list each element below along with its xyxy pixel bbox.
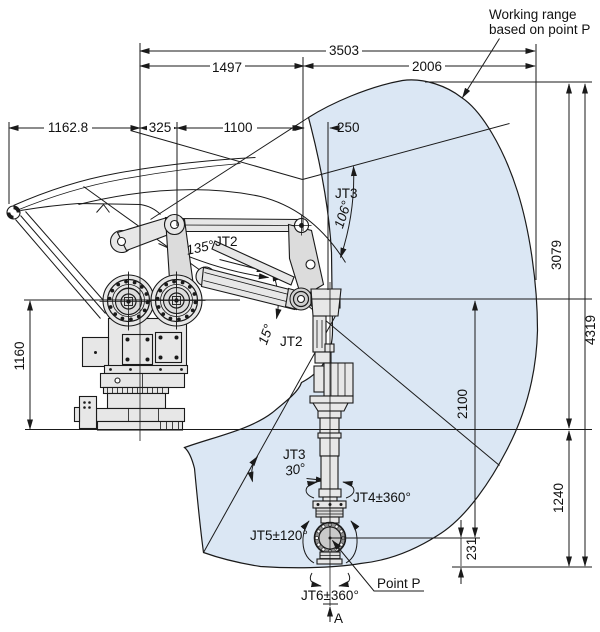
- svg-text:JT2: JT2: [280, 334, 303, 349]
- svg-text:JT2: JT2: [215, 234, 238, 249]
- svg-text:1162.8: 1162.8: [48, 120, 88, 135]
- svg-text:231: 231: [464, 538, 479, 561]
- svg-text:1240: 1240: [551, 483, 566, 513]
- svg-text:3503: 3503: [329, 43, 359, 58]
- svg-text:Working range: Working range: [489, 7, 577, 22]
- svg-text:JT4±360°: JT4±360°: [353, 490, 411, 505]
- svg-text:3079: 3079: [549, 240, 564, 270]
- svg-text:JT3: JT3: [335, 186, 358, 201]
- svg-text:A: A: [334, 611, 343, 626]
- svg-text:JT5±120°: JT5±120°: [250, 528, 308, 543]
- svg-text:1160: 1160: [12, 341, 27, 370]
- svg-text:250: 250: [337, 120, 360, 135]
- svg-text:2100: 2100: [455, 389, 470, 419]
- svg-text:Point P: Point P: [377, 576, 421, 591]
- svg-text:325: 325: [149, 120, 172, 135]
- svg-text:1100: 1100: [223, 120, 252, 135]
- svg-text:4319: 4319: [583, 315, 598, 345]
- svg-text:2006: 2006: [412, 59, 442, 74]
- svg-text:1497: 1497: [212, 60, 242, 75]
- svg-text:based on point P: based on point P: [489, 22, 590, 37]
